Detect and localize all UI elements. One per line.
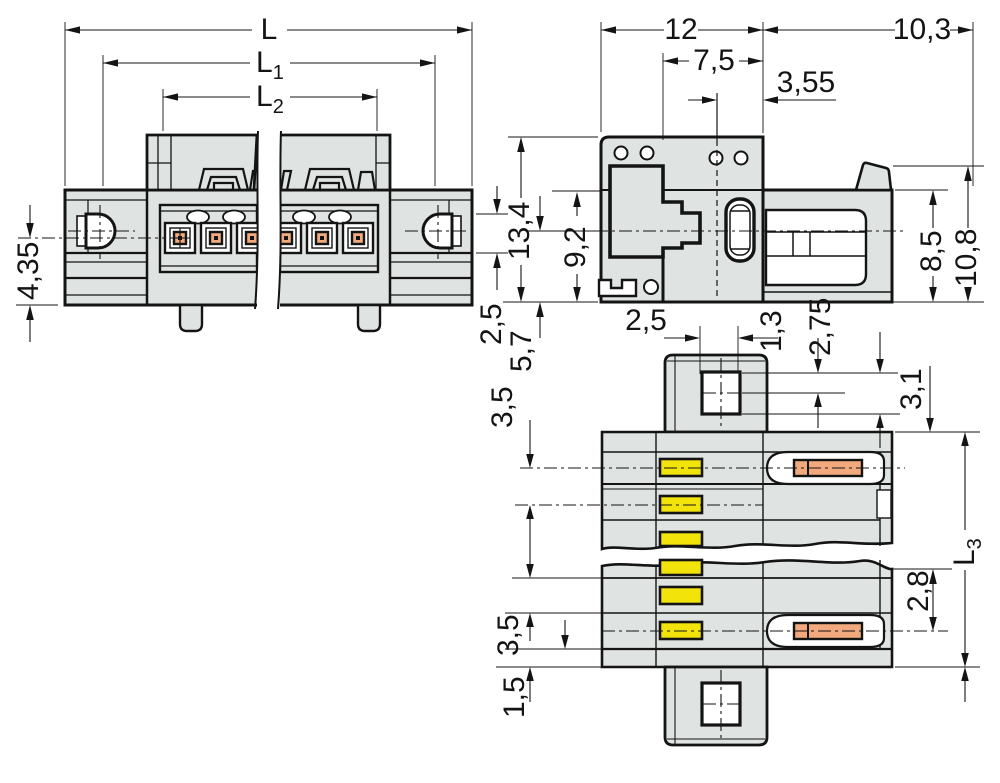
terminal-5 [307, 223, 337, 253]
front-housing [18, 128, 472, 331]
top-block-lower [602, 560, 892, 667]
front-view: L L1 L2 4,35 [12, 13, 508, 345]
side-housing [528, 93, 906, 302]
front-break [255, 128, 281, 312]
top-view: 2,5 1,3 2,75 3,1 [486, 298, 986, 745]
dim-35-top-lines [512, 420, 602, 578]
vent-hole [735, 152, 748, 165]
dim-label-25-front: 2,5 [475, 303, 508, 345]
side-latch-bump [856, 163, 891, 190]
dim-103-lines [763, 22, 973, 186]
dim-label-57: 5,7 [505, 330, 538, 372]
dim-L3-lines [895, 432, 980, 702]
dim-label-L1: L1 [256, 46, 284, 84]
dim-label-L: L [261, 13, 278, 46]
dim-label-103: 10,3 [893, 13, 951, 46]
dim-57-lines [536, 196, 544, 338]
terminal-2 [201, 223, 231, 253]
dim-label-13: 1,3 [755, 310, 788, 352]
front-foot-right [358, 305, 380, 331]
dim-label-L2: L2 [256, 80, 284, 118]
dim-label-92: 9,2 [559, 226, 592, 268]
dim-label-31: 3,1 [895, 368, 928, 410]
vent-hole [710, 152, 723, 165]
top-block-upper [602, 432, 892, 549]
top-housing [515, 355, 948, 745]
vent-hole [641, 147, 654, 160]
terminal-6 [343, 223, 373, 253]
technical-drawing: L L1 L2 4,35 [0, 0, 1000, 783]
dim-label-L3: L3 [948, 538, 986, 566]
dim-label-75: 7,5 [693, 44, 735, 77]
dim-label-15: 1,5 [498, 676, 531, 718]
dim-label-108: 10,8 [950, 229, 983, 287]
side-view: 12 10,3 7,5 3,55 [503, 13, 984, 372]
dim-label-35-top: 3,5 [486, 386, 519, 428]
dim-label-25-top: 2,5 [625, 304, 667, 337]
vent-hole [615, 147, 628, 160]
terminal-1 [165, 223, 195, 253]
dim-label-28: 2,8 [902, 570, 935, 612]
actuator-yellow [660, 532, 702, 546]
cavity-end [877, 490, 891, 518]
dim-label-12: 12 [664, 13, 697, 46]
dim-label-85: 8,5 [915, 230, 948, 272]
drawing-canvas: L L1 L2 4,35 [0, 0, 1000, 783]
dim-275-lines [876, 332, 884, 448]
dim-label-275: 2,75 [804, 298, 837, 356]
dim-label-35-bottom: 3,5 [492, 614, 525, 656]
dim-label-435: 4,35 [12, 242, 45, 300]
dim-label-355: 3,55 [777, 66, 835, 99]
actuator-yellow [660, 587, 702, 604]
foot-hole [644, 280, 658, 294]
plug-cavity [766, 210, 866, 285]
dim-label-134: 13,4 [503, 202, 536, 260]
actuator-yellow [660, 560, 702, 575]
front-foot-left [180, 305, 202, 331]
